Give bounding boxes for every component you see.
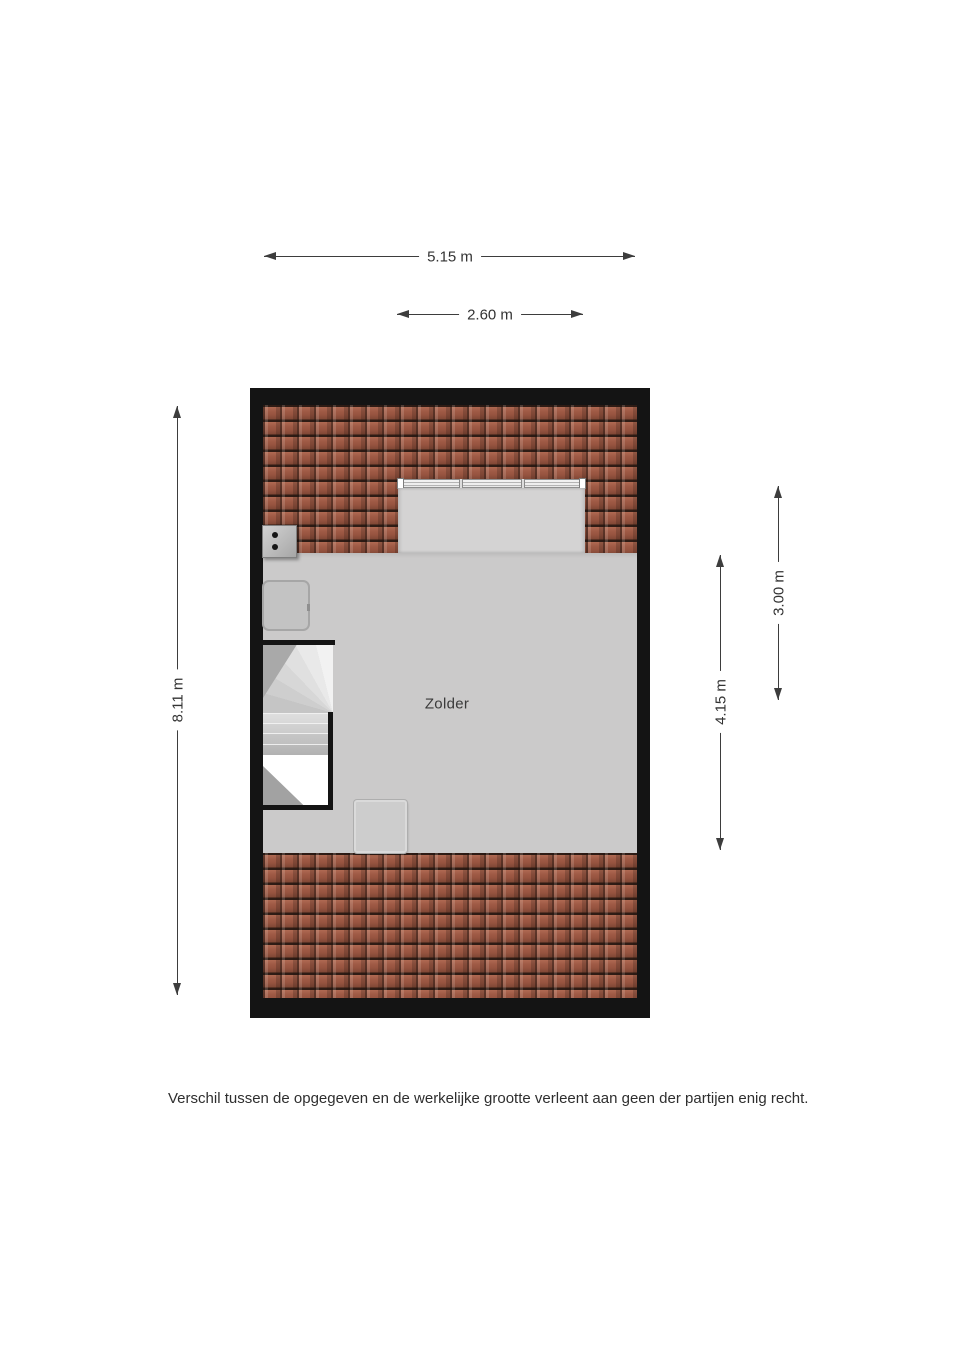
arrowhead-down-icon [774,688,782,700]
floor-plan-page: 5.15 m 2.60 m 8.11 m 4.15 m 3.00 m [0,0,960,1358]
dormer-floor [398,488,585,553]
stair-wall-bottom [263,805,333,810]
window-mullion [459,479,463,488]
cabinet [262,580,310,631]
room-label: Zolder [425,696,469,713]
dormer-window [398,479,585,488]
arrowhead-up-icon [173,406,181,418]
arrowhead-right-icon [623,252,635,260]
storage-box [354,800,407,853]
arrowhead-right-icon [571,310,583,318]
arrowhead-up-icon [774,486,782,498]
arrowhead-up-icon [716,555,724,567]
arrowhead-left-icon [264,252,276,260]
dimension-label-dormer-height: 3.00 m [771,562,788,624]
staircase [263,640,333,810]
disclaimer-text: Verschil tussen de opgegeven en de werke… [168,1090,808,1107]
window-mullion [521,479,525,488]
attic-floor-plan: Zolder [250,388,650,1018]
arrowhead-down-icon [716,838,724,850]
vent-knob-icon [272,532,278,538]
ventilation-unit [262,525,297,558]
dimension-label-room-height: 4.15 m [713,671,730,733]
arrowhead-down-icon [173,983,181,995]
vent-knob-icon [272,544,278,550]
stair-opening [263,755,328,805]
dormer [398,479,585,553]
arrowhead-left-icon [397,310,409,318]
dimension-label-dormer-width: 2.60 m [459,307,521,324]
cabinet-handle [307,604,310,611]
roof-tiles-bottom [263,853,637,998]
dimension-label-total-width: 5.15 m [419,249,481,266]
stair-wall-right [328,712,333,810]
stair-treads [263,713,328,755]
dimension-label-total-height: 8.11 m [170,670,187,731]
stair-opening-shadow [263,755,328,805]
stair-wall-top [263,640,335,645]
